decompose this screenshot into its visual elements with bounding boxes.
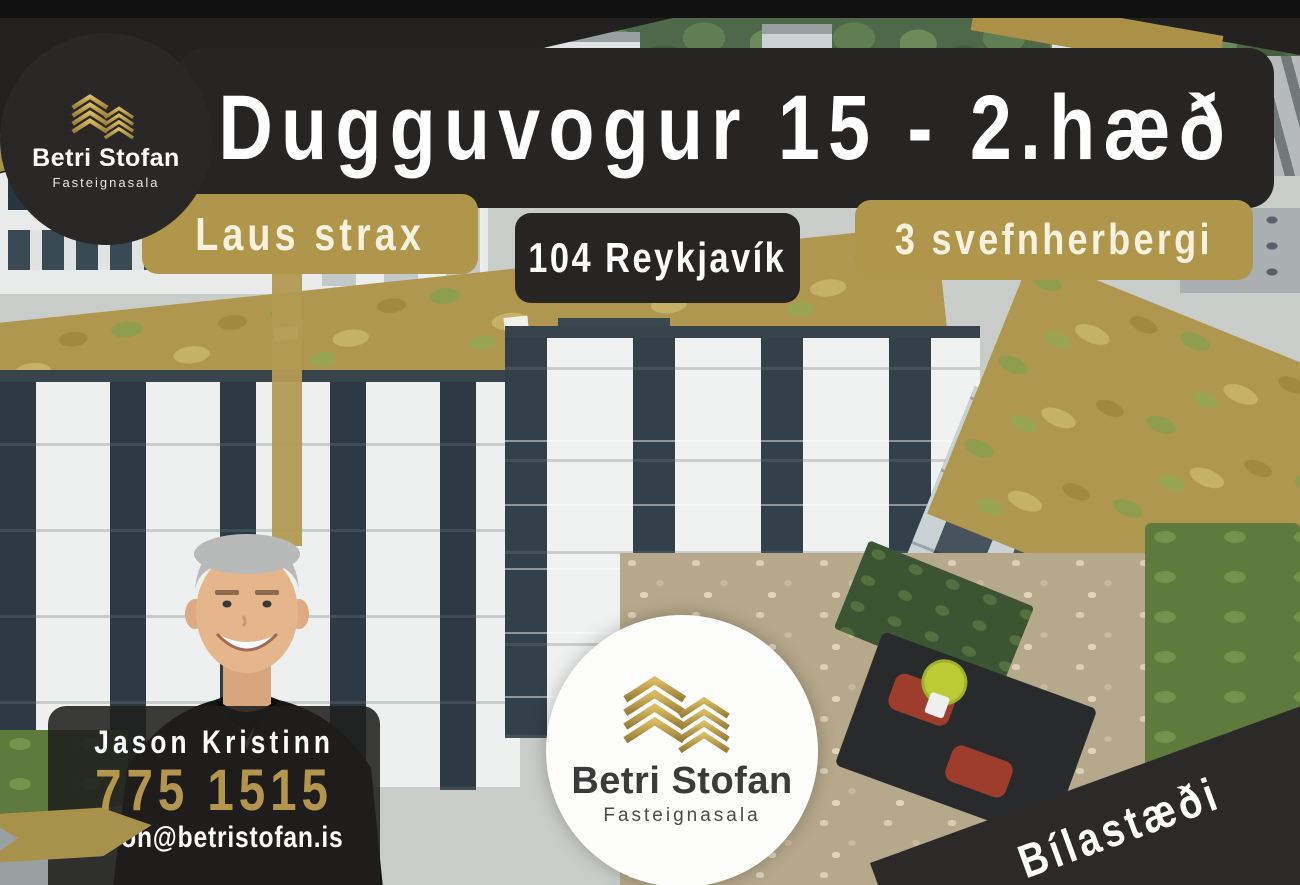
location-label: 104 Reykjavík: [529, 234, 787, 282]
agent-phone: 775 1515: [95, 761, 333, 821]
badge-availability: Laus strax: [142, 194, 478, 274]
brand-logo-icon: [619, 676, 745, 754]
brand-logo-icon: [69, 94, 143, 140]
badge-location: 104 Reykjavík: [515, 213, 800, 303]
brand-tagline: Fasteignasala: [603, 805, 760, 827]
center-logo-circle: Betri Stofan Fasteignasala: [546, 615, 818, 885]
title-banner: Dugguvogur 15 - 2.hæð: [178, 48, 1274, 208]
property-flyer: Dugguvogur 15 - 2.hæð Laus strax 104 Rey…: [0, 18, 1300, 885]
agent-name: Jason Kristinn: [94, 724, 334, 761]
listing-title: Dugguvogur 15 - 2.hæð: [219, 76, 1234, 181]
brand-name: Betri Stofan: [571, 760, 792, 803]
playground-pad: [942, 743, 1015, 801]
brand-name: Betri Stofan: [32, 144, 180, 173]
agent-info-panel: Jason Kristinn 775 1515 jason@betristofa…: [48, 706, 380, 885]
availability-label: Laus strax: [195, 207, 425, 261]
bedrooms-label: 3 svefnherbergi: [895, 215, 1213, 265]
brand-logo-circle: Betri Stofan Fasteignasala: [0, 33, 212, 245]
badge-bedrooms: 3 svefnherbergi: [855, 200, 1253, 280]
brand-tagline: Fasteignasala: [53, 175, 160, 190]
